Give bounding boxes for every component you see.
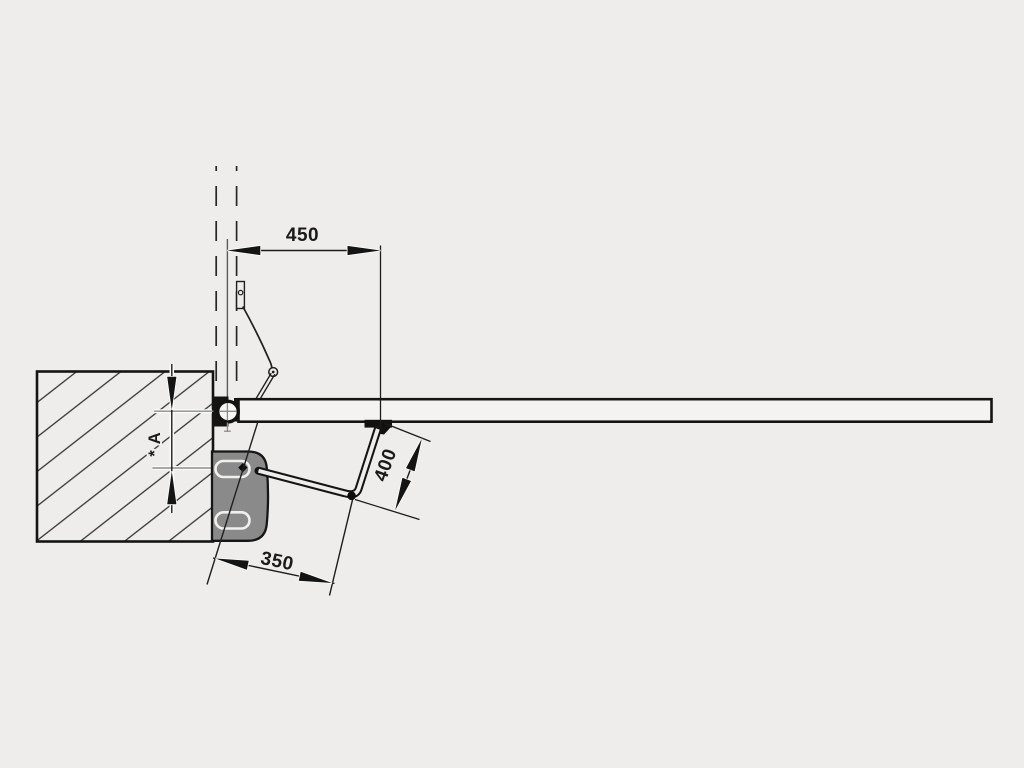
operator-body (212, 452, 268, 541)
wall-pillar (37, 372, 213, 542)
gate-operator-diagram: 450 400 350 * A (0, 0, 1024, 768)
gate-leaf-closed (239, 399, 992, 422)
elbow-joint-open-pin (272, 371, 275, 374)
dimension-450-label: 450 (286, 225, 319, 246)
dimension-a-label: * A (146, 431, 164, 456)
elbow-joint-closed (347, 492, 356, 501)
technical-diagram-canvas: 450 400 350 * A (0, 0, 1024, 768)
wall-hatch (37, 372, 213, 542)
